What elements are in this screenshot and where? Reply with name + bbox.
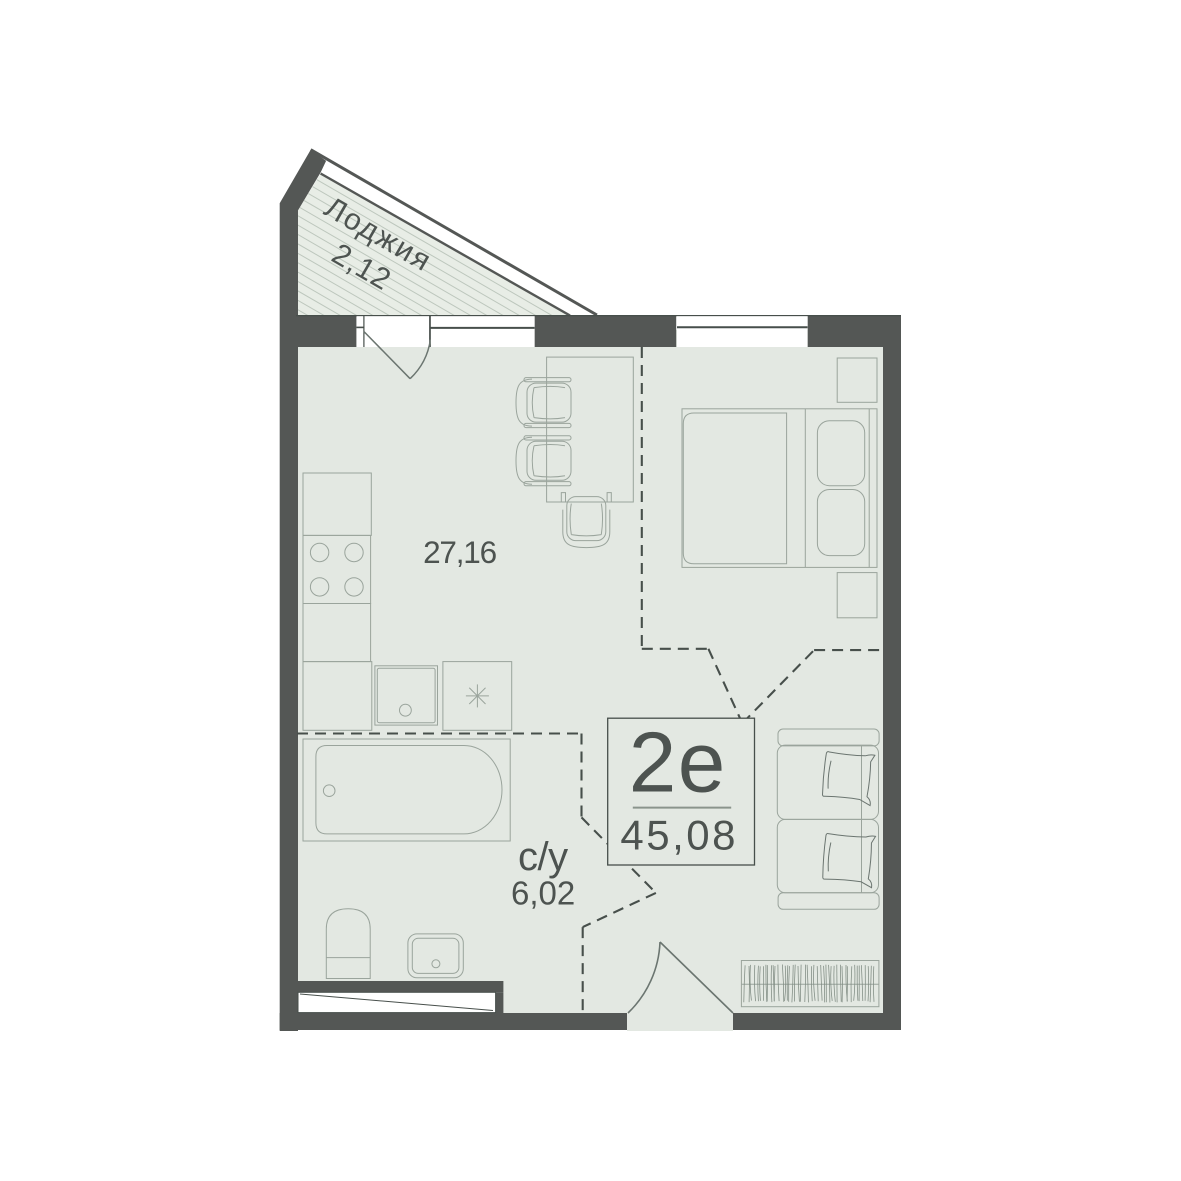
svg-text:27,16: 27,16 (423, 534, 497, 570)
svg-text:6,02: 6,02 (511, 875, 575, 912)
svg-text:2е: 2е (629, 715, 727, 810)
svg-text:с/у: с/у (518, 835, 568, 879)
svg-text:45,08: 45,08 (620, 812, 738, 859)
